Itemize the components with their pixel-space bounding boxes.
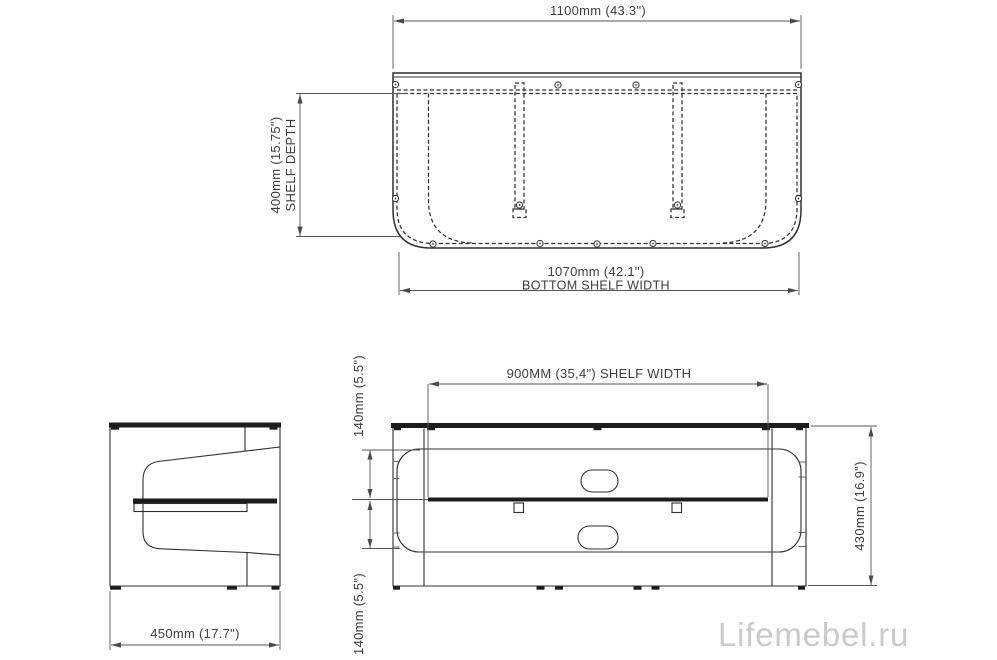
front-glass-top — [391, 423, 809, 428]
glass-clips — [394, 428, 803, 430]
dim-front-heights: 140mm (5.5") 140mm (5.5") — [351, 355, 428, 655]
side-middle-shelf-glass — [133, 499, 277, 504]
watermark: Lifemebel.ru — [718, 616, 909, 653]
side-glass-top — [109, 423, 281, 428]
glass-clip — [111, 428, 119, 430]
dim-side-depth: 450mm (17.7") — [110, 591, 280, 650]
dim-bottom-shelf-width: 1070mm (42.1") BOTTOM SHELF WIDTH — [399, 252, 799, 295]
bottom-shelf-dashed-outline — [397, 94, 797, 244]
glass-clip — [270, 428, 278, 430]
cable-hole-lower — [578, 526, 618, 549]
dim-front-total-height: 430mm (16.9") — [808, 426, 877, 586]
panel-corner-ticks — [393, 462, 806, 548]
support-panel-dashed-left — [513, 83, 526, 218]
front-feet — [393, 587, 805, 590]
dim-shelf-depth: 400mm (15.75") SHELF DEPTH — [268, 94, 408, 237]
bottom-shelf-width-label-line2: BOTTOM SHELF WIDTH — [522, 279, 670, 293]
front-body-outline — [393, 428, 806, 586]
top-width-label: 1100mm (43.3") — [550, 3, 646, 18]
front-shelf-width-label: 900MM (35,4") SHELF WIDTH — [507, 366, 692, 381]
support-panel-dashed-right — [671, 83, 684, 218]
side-middle-shelf-body — [134, 504, 247, 512]
shelf-depth-label-line2: SHELF DEPTH — [283, 119, 298, 212]
dim-front-shelf-width: 900MM (35,4") SHELF WIDTH — [428, 366, 768, 497]
bottom-shelf-width-label-line1: 1070mm (42.1") — [548, 264, 645, 279]
shelf-bracket-right — [672, 503, 682, 513]
shelf-bracket-left — [514, 503, 524, 513]
front-middle-shelf — [428, 498, 768, 502]
front-lower-height-label: 140mm (5.5") — [351, 573, 366, 655]
front-total-height-label: 430mm (16.9") — [852, 461, 867, 550]
inner-contour-dashed-right — [722, 94, 766, 244]
top-shelf-outline — [393, 73, 801, 248]
side-body-outline — [110, 428, 280, 587]
side-depth-label: 450mm (17.7") — [150, 626, 239, 641]
screw-icons — [392, 81, 801, 247]
side-view: 450mm (17.7") — [109, 423, 281, 651]
cable-hole-upper — [581, 470, 618, 492]
technical-drawing: 1100mm (43.3") 400mm (15.75") SHELF DEPT… — [0, 0, 997, 660]
side-feet — [110, 587, 280, 590]
front-upper-height-label: 140mm (5.5") — [351, 355, 366, 437]
top-view: 1100mm (43.3") 400mm (15.75") SHELF DEPT… — [268, 3, 802, 295]
shelf-depth-label-line1: 400mm (15.75") — [268, 117, 283, 214]
inner-contour-dashed-left — [429, 94, 473, 244]
front-view: 900MM (35,4") SHELF WIDTH 140mm (5.5") 1… — [351, 355, 877, 655]
dim-top-width: 1100mm (43.3") — [393, 3, 801, 69]
